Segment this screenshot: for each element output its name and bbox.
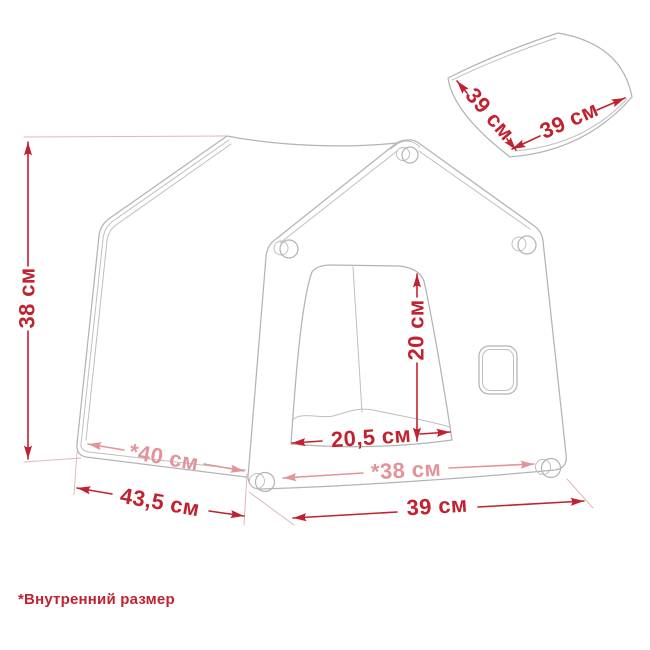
dimension-diagram-page: 38 см 43,5 см *40 см 20,5 см 20 см *38 с… [0, 0, 650, 650]
dimension-label-cushion-width: 39 см [536, 96, 602, 144]
dimension-label-width-inner: *38 см [370, 456, 441, 485]
corner-hole-left [280, 240, 298, 258]
corner-hole-bottom-right [542, 459, 561, 478]
dimension-line-internal [88, 444, 124, 450]
roof-edge-left-line [280, 151, 397, 243]
dimension-line [209, 511, 244, 516]
dimension-label-depth-outer: 43,5 см [118, 483, 201, 522]
dim-cushion-width: 39 см [512, 96, 625, 149]
extension-line [24, 458, 81, 462]
corner-hole-peak [402, 147, 418, 163]
footnote: *Внутренний размер [18, 591, 175, 608]
roof-edge-right-line [419, 151, 530, 229]
extension-line [244, 474, 247, 525]
roof-ridge-line [227, 136, 397, 146]
dimension-line [457, 81, 467, 93]
dimension-label-cushion-depth: 39 см [461, 83, 520, 146]
dimension-line-internal [449, 464, 534, 468]
extension-line [567, 479, 593, 508]
dimension-diagram: 38 см 43,5 см *40 см 20,5 см 20 см *38 с… [0, 0, 650, 650]
dim-width-outer: 39 см [249, 479, 593, 525]
extension-line [24, 136, 226, 137]
vent-slot-inner [483, 350, 514, 391]
dimension-line [77, 488, 112, 494]
dim-door-width: 20,5 см [292, 422, 450, 453]
cushion-top-seam-line [452, 38, 556, 80]
dimension-label-height: 38 см [15, 267, 40, 328]
dim-width-inner: *38 см [283, 456, 534, 485]
vent-slot-outer [479, 346, 517, 394]
dim-depth-inner: *40 см [88, 439, 244, 476]
dimension-line [292, 441, 322, 443]
interior-corner-line [353, 267, 362, 412]
extension-line [249, 492, 294, 525]
dim-house-height: 38 см [15, 136, 227, 462]
dimension-label-door-width: 20,5 см [330, 422, 412, 453]
dimension-label-depth-inner: *40 см [127, 439, 200, 476]
dimension-line [512, 136, 540, 149]
dimension-line-internal [283, 473, 363, 478]
dimension-line [293, 512, 397, 518]
dimension-line [478, 501, 584, 507]
side-panel-inner-edge-line [86, 144, 231, 440]
dim-door-height: 20 см [404, 274, 429, 441]
pet-house-drawing [77, 136, 566, 492]
dimension-line [420, 432, 450, 434]
corner-hole-right [518, 236, 536, 254]
dimension-label-door-height: 20 см [404, 299, 429, 360]
dimension-label-width-outer: 39 см [406, 492, 469, 521]
dimension-line-internal [204, 464, 244, 471]
side-panel-thickness-line [81, 140, 246, 470]
